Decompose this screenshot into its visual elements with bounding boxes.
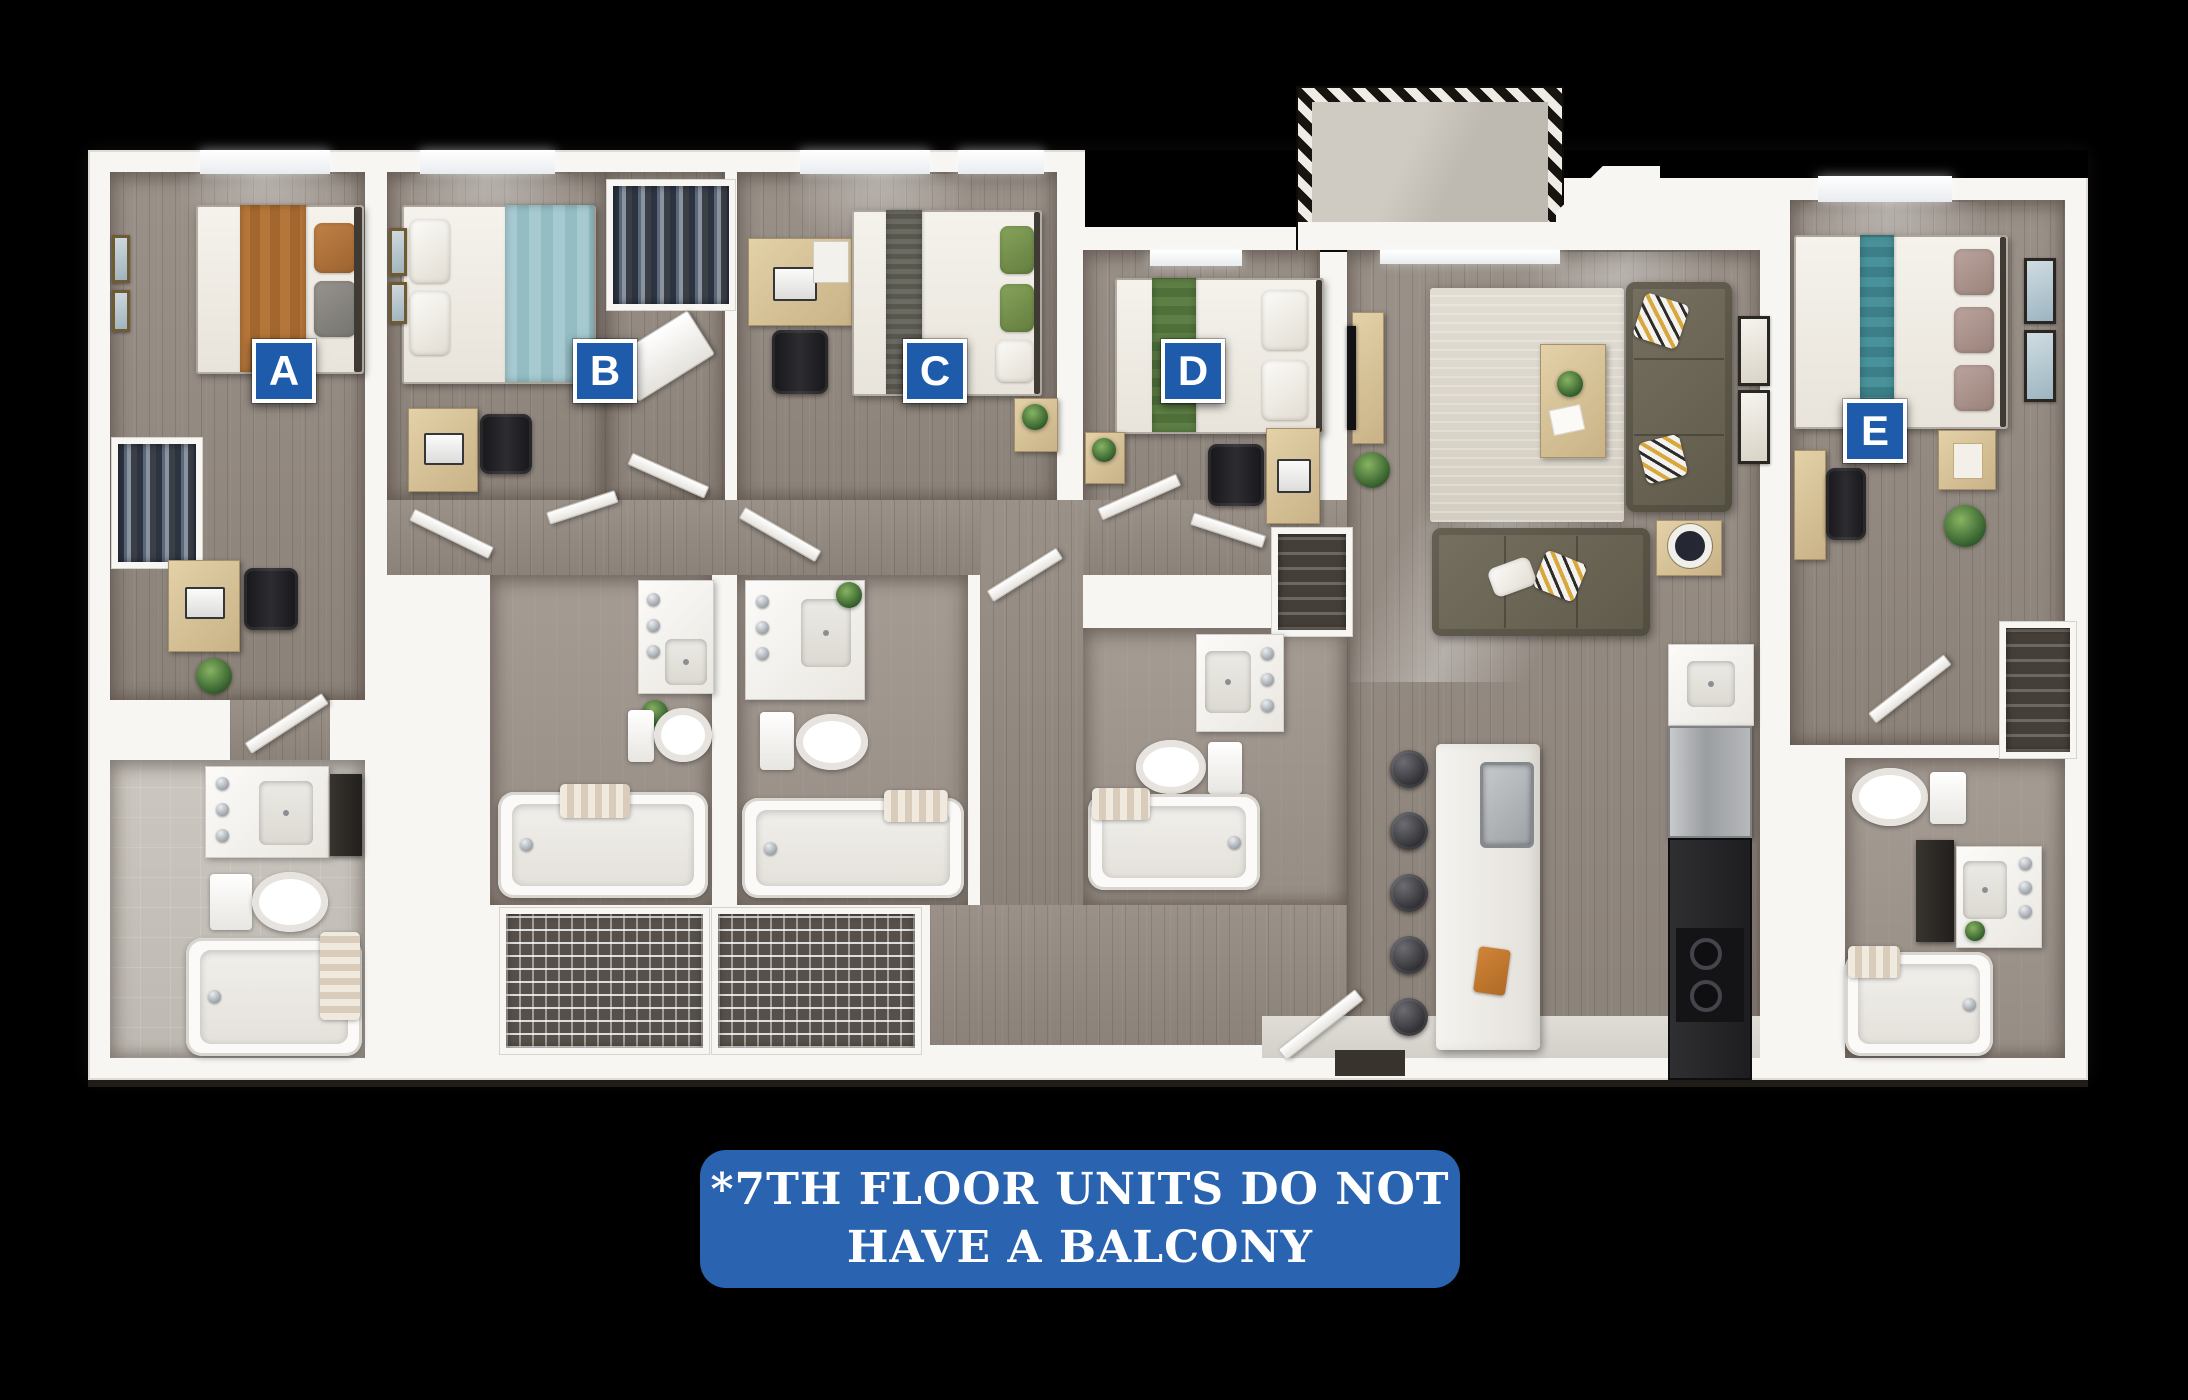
vanity-b [638, 580, 714, 694]
toilet-tank-c [760, 712, 794, 770]
plant-d [1092, 438, 1116, 462]
window-c2 [958, 150, 1044, 174]
bath-cabinet-e [1916, 840, 1954, 942]
balcony-wall [1298, 222, 1562, 250]
faucet-d-3 [1261, 699, 1274, 712]
faucet-e-2 [2019, 881, 2032, 894]
unit-badge-d-letter: D [1178, 347, 1208, 395]
sink-b [665, 639, 707, 685]
kitchen-sink [1480, 762, 1534, 848]
tub-faucet-b [520, 838, 533, 851]
faucet-d-2 [1261, 673, 1274, 686]
toilet-c [796, 714, 868, 770]
pillow-d-2 [1262, 360, 1308, 420]
desk-d [1266, 428, 1320, 524]
towel-c [884, 790, 948, 822]
bed-b [402, 205, 596, 384]
toilet-tank-d [1208, 742, 1242, 794]
sofa-pillow-2 [1638, 434, 1689, 485]
vanity-d [1196, 634, 1284, 732]
pillow-c-green2 [1000, 284, 1034, 332]
tv-console [1352, 312, 1384, 444]
pillow-a-orange [314, 223, 356, 273]
corridor-floor [980, 500, 1083, 905]
exterior-notch [1085, 150, 1300, 227]
pillow-e-3 [1954, 365, 1994, 411]
bar-stool-3 [1390, 874, 1428, 912]
plant-living [1354, 452, 1390, 488]
burner-2 [1690, 980, 1722, 1012]
bar-stool-1 [1390, 750, 1428, 788]
laptop-a [185, 587, 225, 619]
balcony-floor [1312, 102, 1548, 236]
sink-d [1205, 651, 1251, 713]
bar-stool-2 [1390, 812, 1428, 850]
window-a [200, 150, 330, 174]
toilet-tank-a [210, 874, 252, 930]
unit-badge-e: E [1843, 399, 1907, 463]
floor-plan-image: A B C D E *7TH FLOOR UNITS DO NOT HAVE A… [0, 0, 2188, 1400]
tub-faucet-e [1963, 998, 1976, 1011]
pillow-c-green1 [1000, 226, 1034, 274]
faucet-b-3 [647, 645, 660, 658]
sink-a [259, 781, 313, 845]
pillow-a-gray [314, 281, 356, 337]
wall-art-e1 [2024, 258, 2056, 324]
unit-badge-b: B [573, 339, 637, 403]
toilet-b [654, 708, 712, 762]
storage-closet-2 [712, 908, 921, 1054]
building-base-shadow [88, 1080, 2088, 1087]
sofa-throw [1486, 555, 1538, 598]
towel-b [560, 784, 630, 818]
faucet-c-2 [756, 621, 769, 634]
window-b [420, 150, 555, 174]
fridge [1668, 726, 1752, 838]
sofa-pillow-3 [1532, 549, 1588, 603]
entry-threshold [1335, 1050, 1405, 1076]
plant-bath-e [1965, 921, 1985, 941]
towel-a [320, 932, 360, 1020]
note-banner-line2: HAVE A BALCONY [847, 1219, 1313, 1277]
laptop-d [1277, 459, 1311, 493]
coffee-table [1540, 344, 1606, 458]
pillow-d-1 [1262, 290, 1308, 350]
closet-b [607, 180, 735, 310]
tv [1347, 326, 1356, 430]
desk-chair-e [1826, 468, 1866, 540]
pillow-c-white [996, 340, 1034, 382]
cutting-board [1473, 946, 1511, 996]
pillow-b-1 [410, 219, 450, 283]
toilet-tank-e [1930, 772, 1966, 824]
unit-badge-c-letter: C [920, 347, 950, 395]
faucet-d-1 [1261, 647, 1274, 660]
wall-art-living-2 [1738, 390, 1770, 464]
unit-badge-e-letter: E [1861, 407, 1889, 455]
sink-c [801, 599, 851, 667]
wall-art-e2 [2024, 330, 2056, 402]
toilet-a [252, 872, 328, 932]
closet-d [1272, 528, 1352, 636]
wall-art-a1 [112, 235, 130, 283]
headboard-e [2000, 237, 2006, 427]
faucet-e-3 [2019, 905, 2032, 918]
toilet-e [1852, 768, 1928, 826]
counter-basin [1687, 661, 1735, 707]
sofa-right-seam1 [1634, 358, 1724, 360]
sink-e [1963, 861, 2007, 919]
unit-badge-c: C [903, 339, 967, 403]
faucet-a-1 [216, 777, 229, 790]
plant-e [1944, 505, 1986, 547]
vanity-e [1956, 846, 2042, 948]
desk-b [408, 408, 478, 492]
bar-stool-5 [1390, 998, 1428, 1036]
desk-chair-c [772, 330, 828, 394]
bath-cabinet-a [330, 774, 362, 856]
desk-a [168, 560, 240, 652]
faucet-c-1 [756, 595, 769, 608]
burner-1 [1690, 938, 1722, 970]
sofa-right-seam2 [1634, 434, 1724, 436]
sofa-bottom [1432, 528, 1650, 636]
desk-shelf-c [813, 241, 849, 283]
unit-badge-b-letter: B [590, 347, 620, 395]
laptop-b [424, 433, 464, 465]
tub-faucet-c [764, 842, 777, 855]
table-lamp [1668, 524, 1712, 568]
coffee-table-plant [1557, 371, 1583, 397]
desk-chair-a [244, 568, 298, 630]
headboard-a [354, 207, 362, 372]
pillow-b-2 [410, 291, 450, 355]
faucet-e-1 [2019, 857, 2032, 870]
faucet-a-3 [216, 829, 229, 842]
wall-art-living-1 [1738, 316, 1770, 386]
vanity-a [205, 766, 329, 858]
towel-e [1848, 946, 1900, 978]
window-e [1818, 176, 1952, 202]
wall-art-a2 [112, 290, 130, 332]
desk-chair-d [1208, 444, 1264, 506]
closet-a [112, 438, 202, 568]
wall-art-b1 [389, 228, 407, 276]
faucet-c-3 [756, 647, 769, 660]
faucet-b-2 [647, 619, 660, 632]
plant-c [1022, 404, 1048, 430]
pillow-e-2 [1954, 307, 1994, 353]
unit-badge-a-letter: A [269, 347, 299, 395]
nightstand-e [1938, 430, 1996, 490]
unit-badge-d: D [1161, 339, 1225, 403]
unit-badge-a: A [252, 339, 316, 403]
kitchen-island [1436, 744, 1540, 1050]
plant-bath-c [836, 582, 862, 608]
plant-a [196, 658, 232, 694]
headboard-c [1034, 212, 1040, 394]
kitchen-counter [1668, 644, 1754, 726]
magazine [1549, 404, 1586, 436]
desk-e [1794, 450, 1826, 560]
window-c1 [800, 150, 930, 174]
wall-art-b2 [389, 282, 407, 324]
laptop-c [773, 267, 817, 301]
pillow-e-1 [1954, 249, 1994, 295]
faucet-a-2 [216, 803, 229, 816]
bar-stool-4 [1390, 936, 1428, 974]
tub-faucet-a [208, 990, 221, 1003]
toilet-d [1136, 740, 1206, 794]
sofa-pillow-1 [1632, 292, 1690, 350]
window-d [1150, 250, 1242, 266]
note-banner: *7TH FLOOR UNITS DO NOT HAVE A BALCONY [700, 1150, 1460, 1288]
toilet-tank-b [628, 710, 654, 762]
storage-closet-1 [500, 908, 709, 1054]
tub-faucet-d [1228, 836, 1241, 849]
nightstand-decor [1953, 443, 1983, 479]
hallway-floor [387, 500, 1347, 575]
kitchen-cabinets [1668, 838, 1752, 1080]
closet-e [2000, 622, 2076, 758]
sofa-right [1626, 282, 1732, 512]
note-banner-line1: *7TH FLOOR UNITS DO NOT [710, 1161, 1449, 1219]
desk-c [748, 238, 852, 326]
headboard-d [1316, 280, 1322, 432]
desk-chair-b [480, 414, 532, 474]
faucet-b-1 [647, 593, 660, 606]
towel-d [1092, 788, 1150, 820]
